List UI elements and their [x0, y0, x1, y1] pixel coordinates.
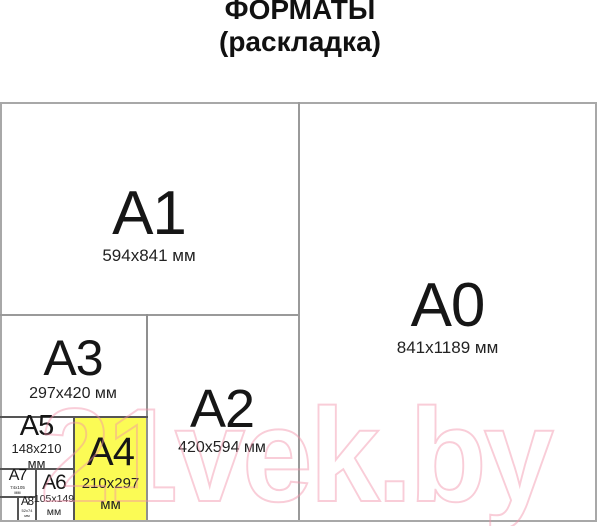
format-a3-dims: 297x420 мм — [29, 384, 117, 404]
format-a2-label: A2 420x594 мм — [146, 316, 298, 524]
format-a0-dims: 841x1189 мм — [397, 337, 499, 358]
format-a3-label: A3 297x420 мм — [0, 317, 146, 419]
format-a6-name: A6 — [42, 472, 66, 493]
format-a8-unit: мм — [24, 514, 30, 519]
format-a5-size: 148x210 — [12, 442, 62, 457]
format-a7-name: A7 — [9, 468, 27, 484]
page-title: ФОРМАТЫ — [0, 0, 600, 24]
format-a4-label: A4 210x297 мм — [75, 421, 146, 526]
format-a8-label: A8 52x74 мм — [17, 496, 37, 520]
format-a6-size: 105x149 — [34, 493, 74, 506]
format-a1-dims: 594x841 мм — [102, 245, 195, 266]
format-a7-unit: мм — [14, 490, 20, 495]
format-a6-unit: мм — [47, 506, 61, 519]
format-a6-label: A6 105x149 мм — [35, 468, 73, 522]
page-subtitle: (раскладка) — [0, 28, 600, 56]
format-a0-label: A0 841x1189 мм — [298, 106, 597, 526]
format-a2-dims: 420x594 мм — [178, 438, 266, 458]
format-a7-label: A7 74x105 мм — [0, 468, 35, 496]
format-a4-size: 210x297 — [82, 473, 140, 495]
format-a0-name: A0 — [411, 274, 485, 337]
format-a3-name: A3 — [43, 333, 102, 384]
format-a1-label: A1 594x841 мм — [0, 118, 298, 330]
paper-formats-diagram: ФОРМАТЫ (раскладка) A1 594x841 мм A0 841… — [0, 0, 600, 526]
format-a5-label: A5 148x210 мм — [0, 416, 73, 468]
format-a2-name: A2 — [190, 382, 254, 437]
format-a5-name: A5 — [20, 412, 53, 442]
format-a4-name: A4 — [87, 432, 134, 473]
format-a1-name: A1 — [112, 182, 186, 245]
format-a4-unit: мм — [100, 494, 121, 516]
